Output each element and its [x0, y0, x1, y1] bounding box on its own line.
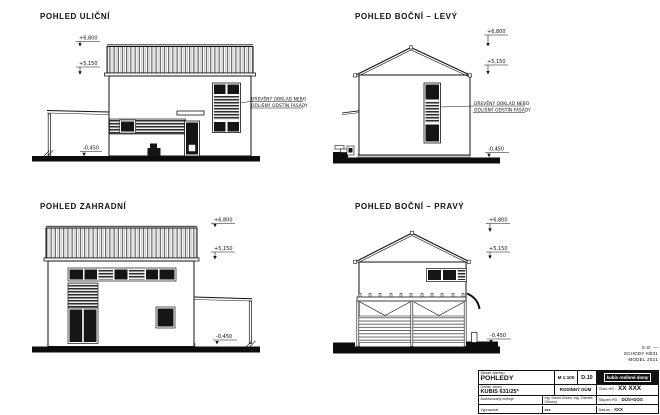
company-logo: kubis rodinné domy: [597, 371, 658, 384]
drawing-number: D.10: [581, 375, 592, 381]
street-elevation-drawing: DŘEVĚNÝ OBKLAD NEBO ODLIŠNÝ ODSTÍN FASÁD…: [32, 36, 308, 162]
side-left-canopy: [342, 111, 359, 113]
title-block: Obsah výkresu POHLEDY M 1:100 D.10 kubis…: [478, 370, 659, 414]
garden-window-row: [68, 268, 176, 281]
street-dim-mid-label: +5,150: [79, 61, 98, 67]
side-left-cladding-note-line2: ODLIŠNÝ ODSTÍN FASÁDY: [474, 106, 531, 113]
garden-dim-mid-label: +5,150: [214, 246, 233, 252]
hs-label: Číslo HS :: [599, 386, 617, 391]
scale-value: M 1:100: [558, 375, 575, 380]
side-left-window-strip: [424, 83, 441, 143]
side-left-roof: [355, 48, 471, 76]
engineer-names: Ing. David Ondra, Ing. Zdeněk Chromý: [543, 396, 597, 404]
garden-louver-block: [68, 283, 98, 307]
street-door-canopy: [177, 111, 204, 115]
side-left-elevation-drawing: DŘEVĚNÝ OBKLAD NEBO ODLIŠNÝ ODSTÍN FASÁD…: [333, 29, 531, 164]
street-upper-siding: [107, 47, 253, 74]
author-value: xxx: [543, 406, 597, 414]
garden-dim-ground: -0,450: [213, 334, 237, 345]
side-right-pergola: [357, 293, 466, 346]
engineer-label: Autorizovaný inženýr: [479, 395, 543, 404]
side-right-dim-top: +6,800: [486, 218, 510, 233]
author-label: Vypracoval: [479, 406, 543, 414]
side-left-dim-ground-label: -0,450: [488, 147, 504, 153]
side-left-dim-ground: -0,450: [485, 147, 509, 158]
street-window: [121, 122, 134, 132]
side-right-dim-mid: +5,150: [486, 246, 510, 259]
side-right-dim-mid-label: +5,150: [489, 246, 508, 252]
street-dim-top-label: +6,800: [79, 36, 98, 42]
garden-window: [158, 309, 174, 327]
street-dim-ground: -0,450: [80, 146, 102, 157]
side-right-window-group: [427, 269, 467, 282]
company-logo-text: kubis rodinné domy: [604, 373, 652, 381]
street-utility-box: [150, 144, 157, 149]
garden-dim-top: +6,800: [211, 218, 235, 228]
drawing-sheet: DŘEVĚNÝ OBKLAD NEBO ODLIŠNÝ ODSTÍN FASÁD…: [0, 0, 660, 415]
side-right-dim-ground-label: -0,450: [490, 333, 506, 339]
side-left-dim-mid-label: +5,150: [487, 59, 506, 65]
side-left-dim-top: +6,800: [484, 29, 508, 47]
garden-dim-mid: +5,150: [211, 246, 235, 260]
date-label: Datum :: [599, 407, 613, 412]
side-left-dim-mid: +5,150: [484, 59, 508, 75]
garden-glass-door: [68, 308, 98, 344]
street-view-title: POHLED ULIČNÍ: [40, 12, 110, 21]
sheet-note: S.O. — SCHODY KB31 MODEL 2021: [540, 345, 658, 364]
date-value: XXX: [614, 407, 623, 412]
street-dim-top: +6,800: [76, 36, 100, 47]
side-right-ground: [333, 347, 500, 354]
note-line3: MODEL 2021: [540, 357, 658, 363]
garden-elevation-drawing: +6,800 +5,150 -0,450: [32, 218, 260, 353]
garden-view-title: POHLED ZAHRADNÍ: [40, 202, 126, 211]
side-right-dim-top-label: +6,800: [489, 218, 508, 224]
side-right-elevation-drawing: +6,800 +5,150 -0,450: [333, 218, 511, 354]
side-left-ground: [333, 158, 500, 164]
garden-upper-siding: [46, 228, 197, 258]
side-left-view-title: POHLED BOČNÍ – LEVÝ: [355, 12, 458, 21]
side-right-dim-ground: -0,450: [487, 333, 511, 344]
side-left-wall: [359, 75, 470, 155]
side-right-roof: [355, 233, 470, 262]
stage-value: DÚS+DOS: [621, 397, 642, 402]
garden-dim-top-label: +6,800: [214, 218, 233, 224]
garden-ground: [32, 347, 260, 353]
side-right-view-title: POHLED BOČNÍ – PRAVÝ: [355, 202, 464, 211]
street-ground: [32, 156, 260, 162]
side-left-dim-top-label: +6,800: [487, 29, 506, 35]
side-left-cladding-note-line1: DŘEVĚNÝ OBKLAD NEBO: [474, 99, 530, 107]
street-cladding-note-line1: DŘEVĚNÝ OBKLAD NEBO: [251, 94, 307, 102]
side-right-downspout: [467, 294, 480, 310]
street-dim-ground-label: -0,450: [83, 146, 99, 152]
building-type: RODINNÝ DŮM: [560, 387, 591, 392]
street-window-stack: [213, 83, 241, 133]
street-cladding-note-line2: ODLIŠNÝ ODSTÍN FASÁDY: [251, 102, 308, 109]
street-dim-mid: +5,150: [76, 61, 100, 75]
hs-value: XX XXX: [618, 385, 641, 392]
street-carport: [44, 111, 109, 157]
house-model: KUBIS 631/25*: [481, 389, 553, 394]
stage-label: Stupeň PD :: [599, 397, 620, 402]
content-value: POHLEDY: [481, 375, 553, 383]
garden-dim-ground-label: -0,450: [216, 334, 232, 340]
side-left-steps: [335, 146, 344, 150]
